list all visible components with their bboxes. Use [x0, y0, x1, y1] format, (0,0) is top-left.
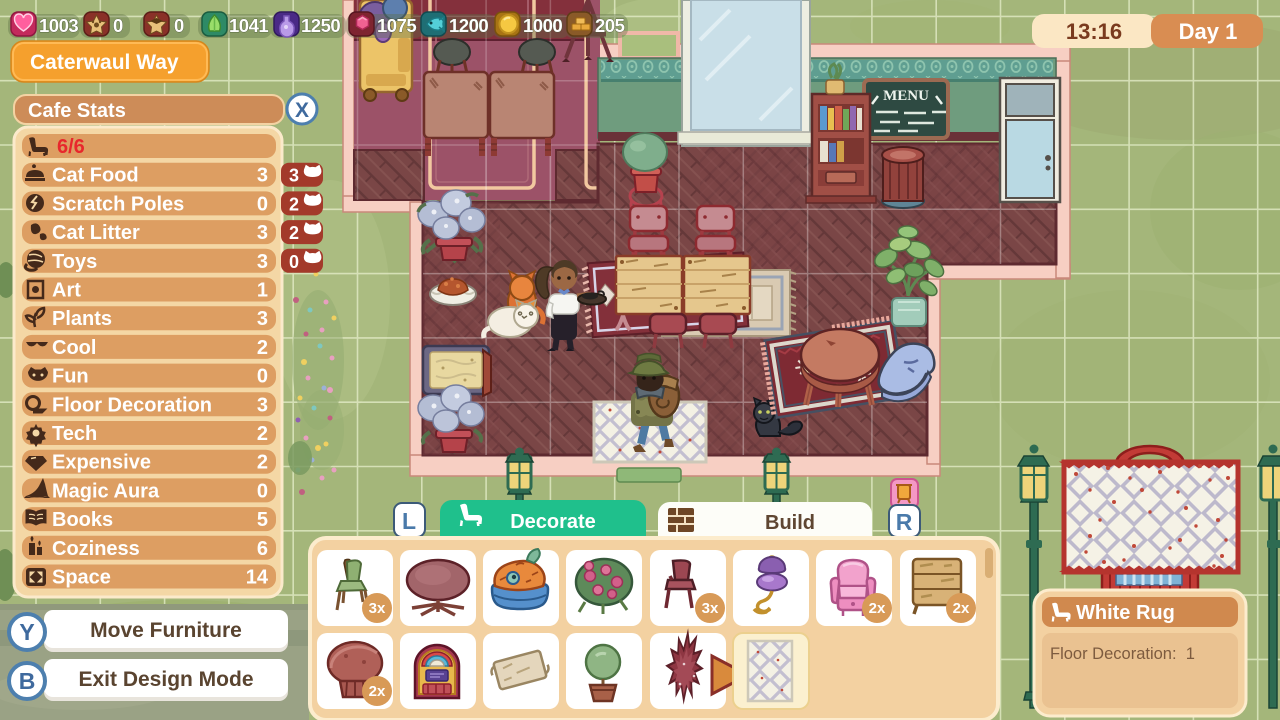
svg-text:Toys: Toys [52, 251, 97, 273]
svg-text:Cat Food: Cat Food [52, 165, 139, 187]
svg-text:0: 0 [174, 15, 184, 36]
svg-text:1075: 1075 [377, 15, 416, 36]
svg-text:0: 0 [257, 193, 268, 215]
svg-text:2: 2 [289, 194, 299, 214]
svg-text:1: 1 [257, 280, 268, 302]
svg-text:2: 2 [289, 223, 299, 243]
svg-text:Space: Space [52, 567, 111, 589]
svg-text:3: 3 [257, 222, 268, 244]
svg-text:Fun: Fun [52, 366, 89, 388]
svg-text:5: 5 [257, 509, 268, 531]
svg-text:Plants: Plants [52, 308, 112, 330]
svg-text:Coziness: Coziness [52, 538, 140, 560]
svg-text:Books: Books [52, 509, 113, 531]
svg-text:Build: Build [765, 512, 815, 534]
svg-text:2x: 2x [869, 600, 886, 617]
svg-text:3: 3 [257, 308, 268, 330]
svg-text:Magic Aura: Magic Aura [52, 480, 160, 502]
svg-text:1003: 1003 [39, 15, 78, 36]
svg-text:Expensive: Expensive [52, 452, 151, 474]
svg-text:X: X [295, 99, 309, 122]
svg-text:Move Furniture: Move Furniture [90, 619, 242, 642]
svg-text:13:16: 13:16 [1066, 19, 1122, 44]
svg-text:3x: 3x [702, 600, 719, 617]
svg-text:2: 2 [257, 337, 268, 359]
svg-text:Day 1: Day 1 [1179, 19, 1238, 44]
svg-text:6/6: 6/6 [57, 136, 85, 158]
svg-text:3x: 3x [369, 600, 386, 617]
svg-text:B: B [19, 668, 36, 694]
svg-text:Floor Decoration: Floor Decoration [52, 394, 212, 416]
svg-text:0: 0 [289, 252, 299, 272]
svg-text:L: L [402, 508, 416, 534]
svg-text:6: 6 [257, 538, 268, 560]
svg-text:Tech: Tech [52, 423, 97, 445]
svg-text:14: 14 [246, 567, 269, 589]
svg-text:1250: 1250 [301, 15, 340, 36]
svg-text:Y: Y [19, 619, 34, 645]
svg-text:1041: 1041 [229, 15, 268, 36]
svg-text:Floor Decoration: 1: Floor Decoration: 1 [1050, 645, 1195, 663]
svg-text:Art: Art [52, 280, 81, 302]
svg-text:1200: 1200 [449, 15, 488, 36]
svg-text:Exit Design Mode: Exit Design Mode [78, 668, 253, 691]
svg-text:205: 205 [595, 15, 625, 36]
svg-text:Cafe Stats: Cafe Stats [28, 100, 126, 122]
svg-text:2x: 2x [369, 683, 386, 700]
svg-text:3: 3 [257, 165, 268, 187]
svg-text:2: 2 [257, 452, 268, 474]
svg-text:3: 3 [289, 166, 299, 186]
svg-text:0: 0 [257, 366, 268, 388]
svg-text:Decorate: Decorate [510, 511, 596, 533]
svg-text:Scratch Poles: Scratch Poles [52, 193, 184, 215]
svg-text:Caterwaul Way: Caterwaul Way [30, 51, 179, 74]
svg-text:1000: 1000 [523, 15, 562, 36]
svg-text:2: 2 [257, 423, 268, 445]
svg-text:White Rug: White Rug [1076, 602, 1175, 624]
svg-text:3: 3 [257, 394, 268, 416]
svg-text:Cool: Cool [52, 337, 96, 359]
svg-text:0: 0 [113, 15, 123, 36]
svg-text:R: R [896, 509, 913, 535]
svg-text:2x: 2x [953, 600, 970, 617]
svg-text:3: 3 [257, 251, 268, 273]
svg-text:0: 0 [257, 480, 268, 502]
svg-text:MENU: MENU [883, 88, 929, 104]
svg-text:Cat Litter: Cat Litter [52, 222, 140, 244]
